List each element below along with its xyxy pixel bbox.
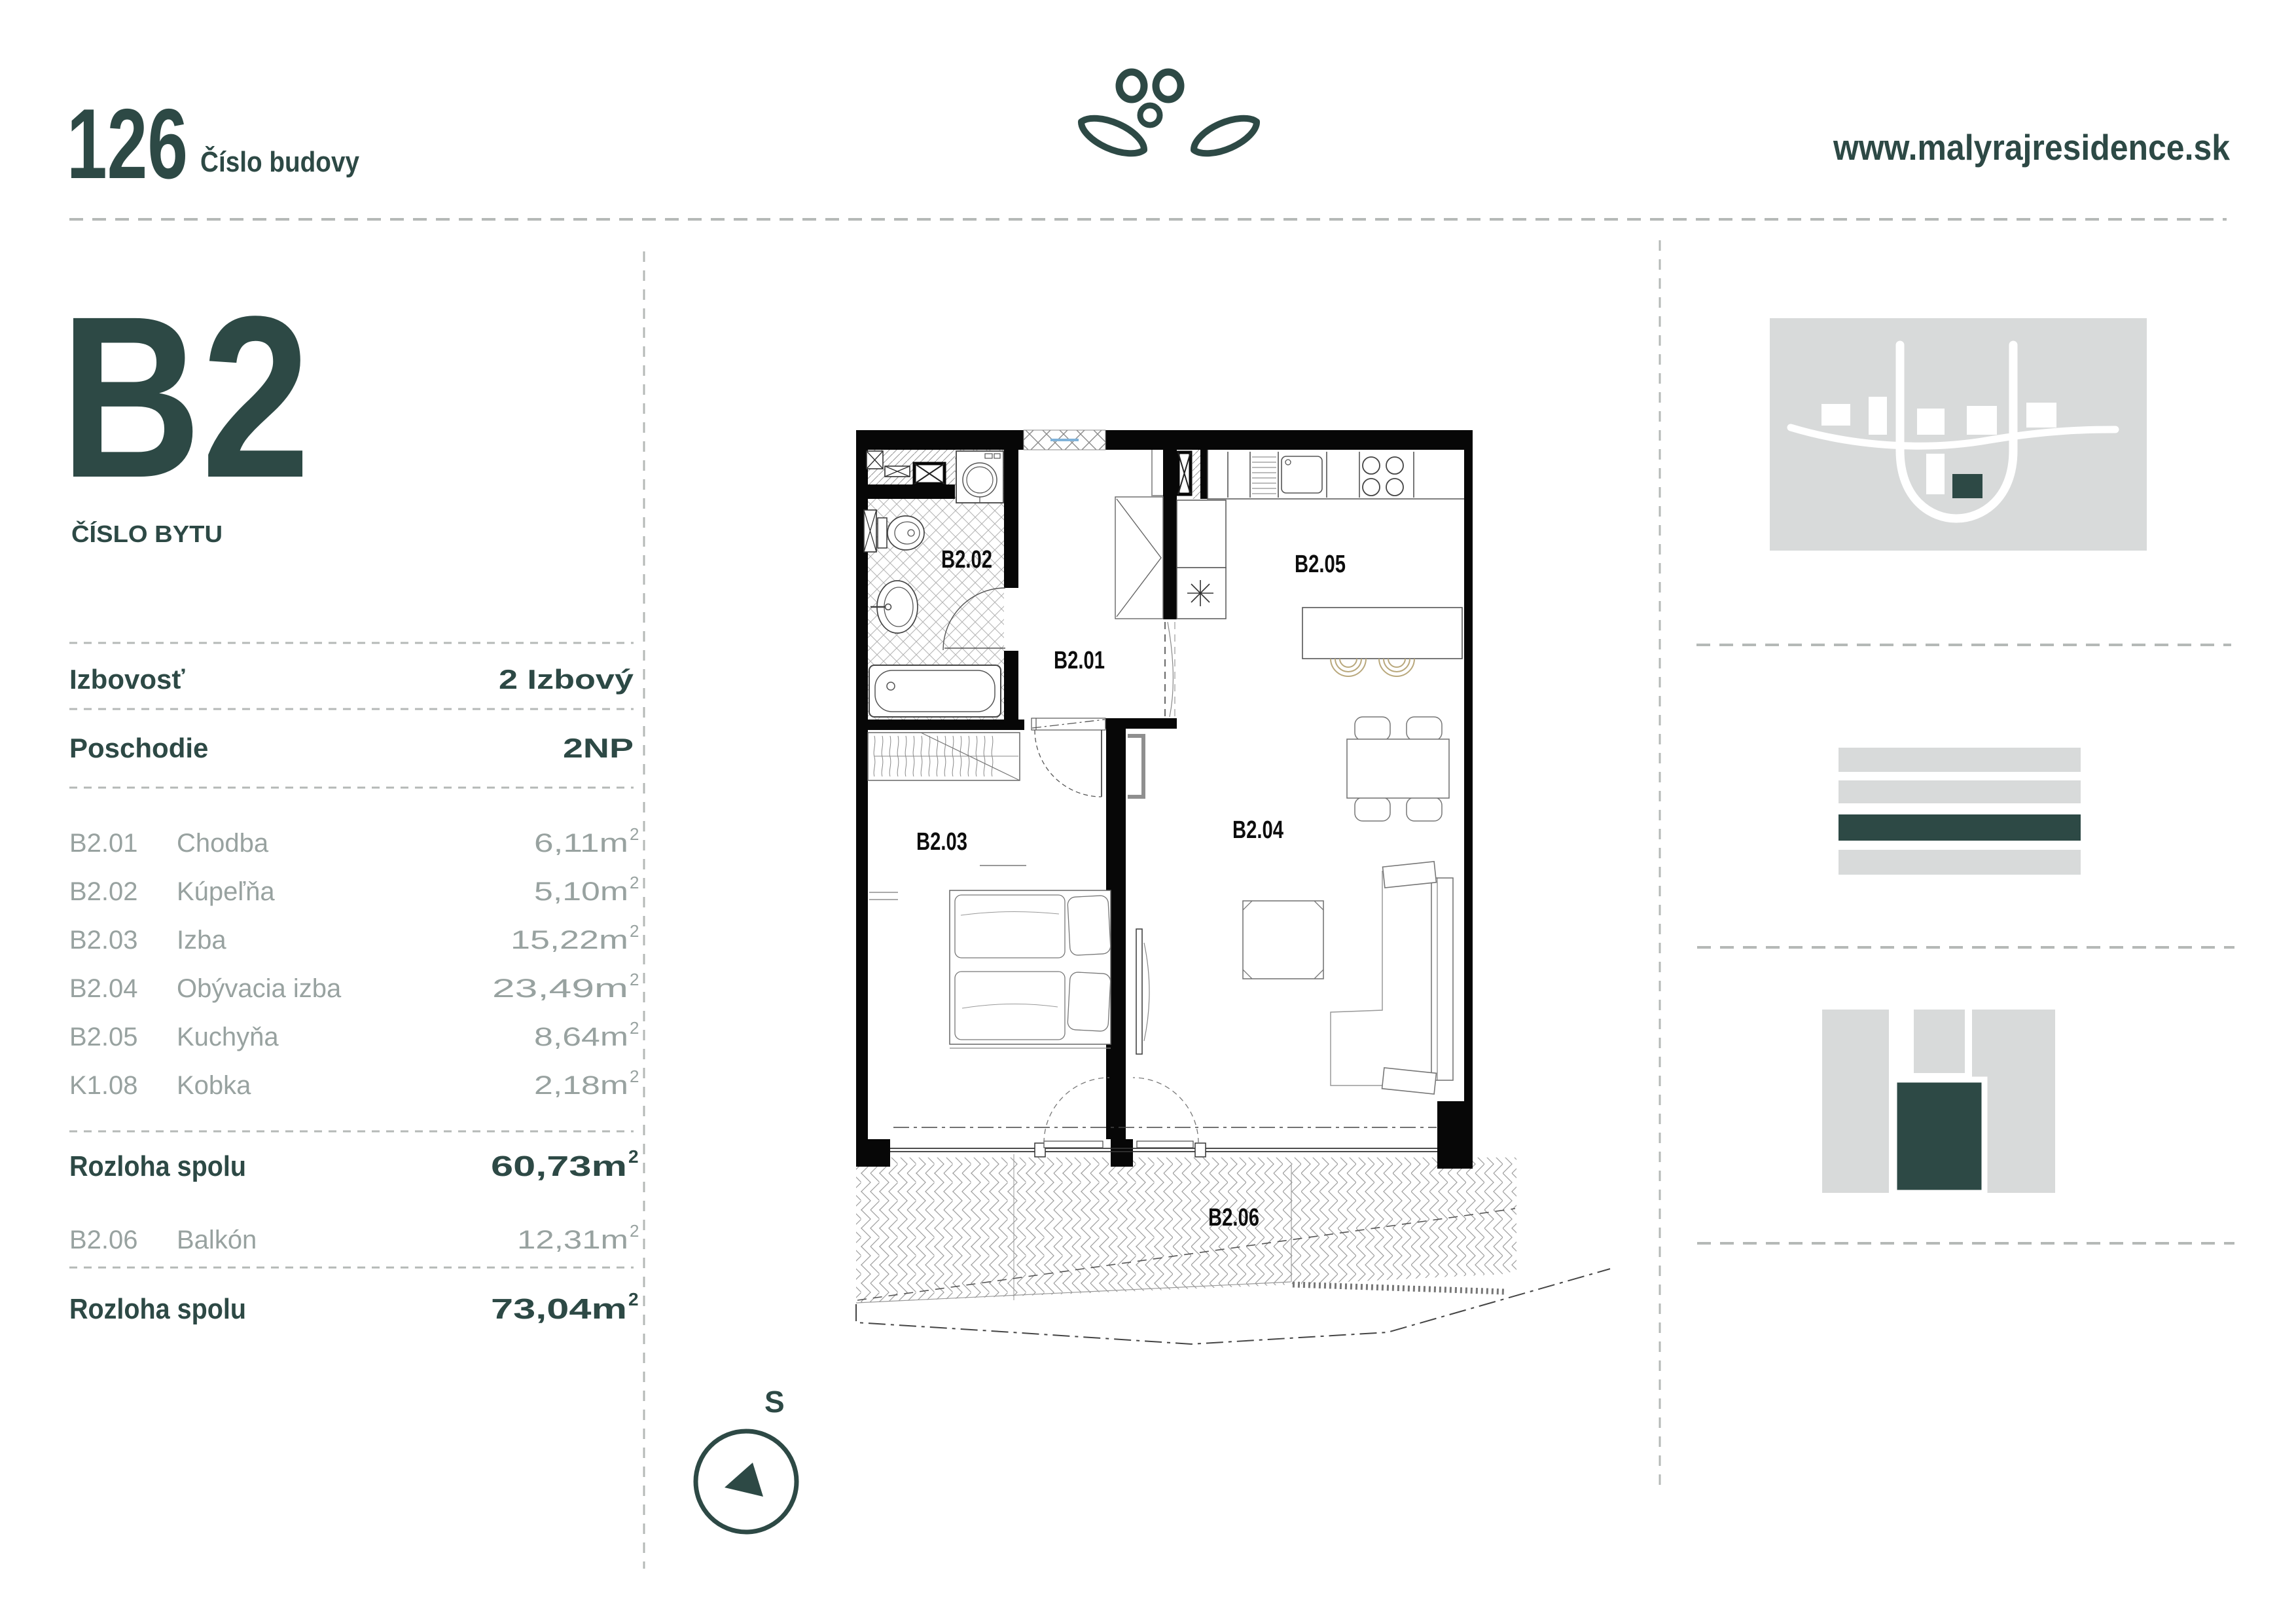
svg-text:B2.04: B2.04 bbox=[69, 974, 138, 1003]
svg-text:2: 2 bbox=[630, 1067, 639, 1086]
svg-text:B2.02: B2.02 bbox=[69, 877, 138, 906]
svg-text:Kobka: Kobka bbox=[177, 1071, 251, 1100]
svg-text:ČÍSLO BYTU: ČÍSLO BYTU bbox=[71, 520, 223, 547]
svg-text:K1.08: K1.08 bbox=[69, 1071, 138, 1100]
svg-text:Izbovosť: Izbovosť bbox=[69, 664, 185, 695]
svg-text:60,73m: 60,73m bbox=[491, 1150, 627, 1182]
svg-text:B2.06: B2.06 bbox=[1208, 1204, 1259, 1231]
svg-text:Kuchyňa: Kuchyňa bbox=[177, 1023, 279, 1051]
svg-text:Chodba: Chodba bbox=[177, 829, 269, 858]
svg-text:B2.03: B2.03 bbox=[69, 926, 138, 955]
svg-text:Číslo budovy: Číslo budovy bbox=[200, 145, 359, 178]
svg-text:2 Izbový: 2 Izbový bbox=[499, 664, 634, 695]
svg-text:5,10m: 5,10m bbox=[534, 877, 628, 906]
svg-text:Poschodie: Poschodie bbox=[69, 733, 208, 763]
svg-text:2: 2 bbox=[630, 1018, 639, 1038]
svg-text:2: 2 bbox=[628, 1289, 639, 1309]
svg-text:126: 126 bbox=[67, 88, 188, 200]
svg-text:2NP: 2NP bbox=[563, 733, 634, 763]
svg-text:73,04m: 73,04m bbox=[491, 1293, 627, 1325]
svg-text:15,22m: 15,22m bbox=[511, 926, 628, 955]
svg-text:Rozloha spolu: Rozloha spolu bbox=[69, 1150, 246, 1182]
svg-text:B2.04: B2.04 bbox=[1232, 816, 1283, 844]
svg-text:Balkón: Balkón bbox=[177, 1226, 257, 1254]
svg-text:2: 2 bbox=[630, 824, 639, 844]
svg-text:B2.06: B2.06 bbox=[69, 1226, 138, 1254]
svg-text:2: 2 bbox=[630, 970, 639, 989]
svg-text:Obývacia izba: Obývacia izba bbox=[177, 974, 342, 1003]
svg-text:Izba: Izba bbox=[177, 926, 226, 955]
svg-text:Kúpeľňa: Kúpeľňa bbox=[177, 877, 275, 906]
svg-text:8,64m: 8,64m bbox=[534, 1023, 628, 1051]
svg-text:Rozloha spolu: Rozloha spolu bbox=[69, 1293, 246, 1325]
svg-text:www.malyrajresidence.sk: www.malyrajresidence.sk bbox=[1833, 127, 2230, 168]
svg-text:B2.03: B2.03 bbox=[916, 828, 967, 856]
svg-text:2: 2 bbox=[630, 1221, 639, 1241]
svg-text:2,18m: 2,18m bbox=[534, 1071, 628, 1100]
svg-text:B2.05: B2.05 bbox=[69, 1023, 138, 1051]
svg-text:B2: B2 bbox=[60, 268, 310, 526]
svg-text:2: 2 bbox=[630, 921, 639, 941]
svg-text:B2.01: B2.01 bbox=[69, 829, 138, 858]
svg-text:12,31m: 12,31m bbox=[517, 1226, 628, 1254]
svg-text:B2.01: B2.01 bbox=[1054, 647, 1105, 674]
svg-text:S: S bbox=[764, 1385, 785, 1419]
svg-text:23,49m: 23,49m bbox=[492, 974, 628, 1003]
svg-text:B2.02: B2.02 bbox=[941, 546, 992, 574]
svg-text:B2.05: B2.05 bbox=[1295, 551, 1346, 578]
svg-text:2: 2 bbox=[628, 1146, 639, 1167]
svg-text:2: 2 bbox=[630, 873, 639, 892]
svg-text:6,11m: 6,11m bbox=[534, 829, 628, 858]
